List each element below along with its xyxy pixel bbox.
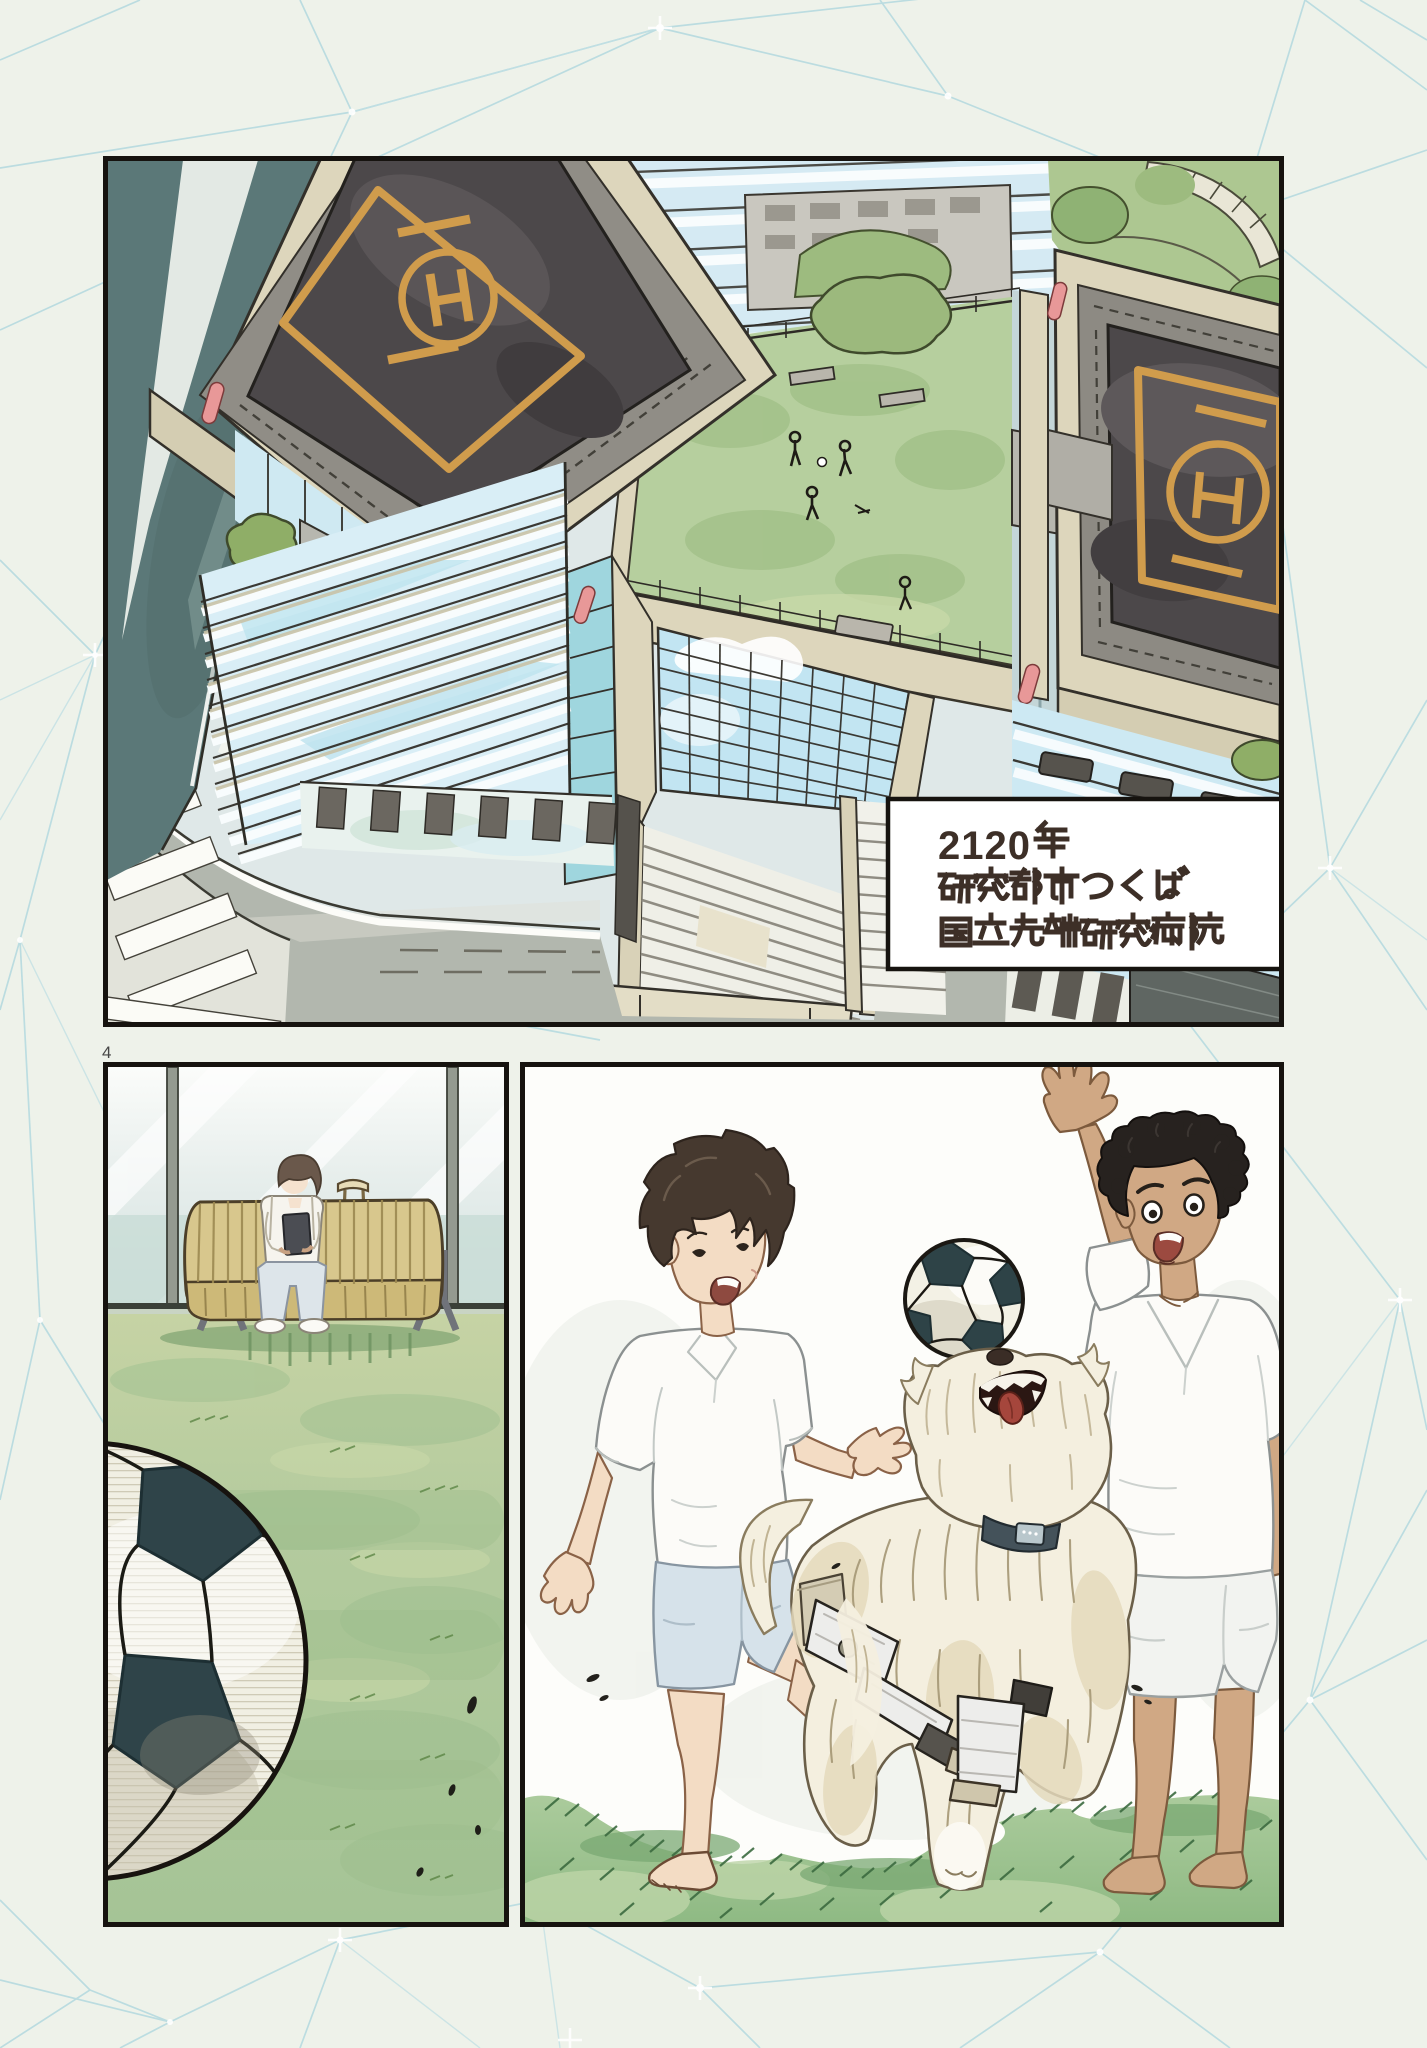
svg-text:2120: 2120 [938, 824, 1031, 868]
svg-text:4: 4 [102, 1043, 111, 1062]
